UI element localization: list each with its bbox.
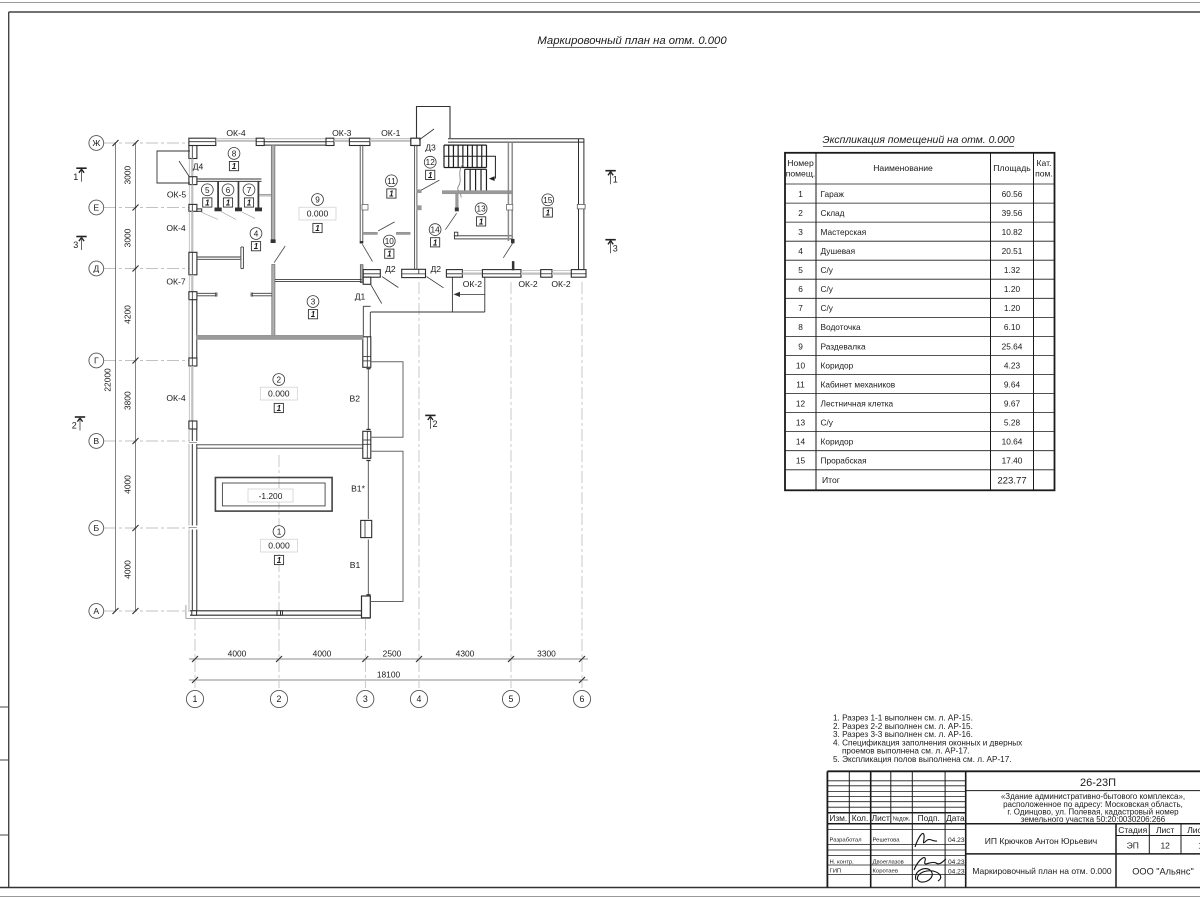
svg-text:ОК-4: ОК-4	[166, 223, 186, 233]
svg-text:ОК-2: ОК-2	[518, 279, 538, 289]
svg-text:Изм.: Изм.	[829, 813, 847, 823]
svg-text:10: 10	[796, 360, 806, 370]
svg-text:3: 3	[311, 298, 316, 307]
svg-text:14: 14	[796, 437, 806, 447]
svg-text:1: 1	[247, 199, 252, 208]
svg-text:1: 1	[613, 174, 618, 184]
svg-text:1.20: 1.20	[1004, 303, 1021, 313]
svg-text:60.56: 60.56	[1002, 189, 1023, 199]
svg-text:Склад: Склад	[821, 208, 845, 218]
svg-text:Ж: Ж	[92, 138, 100, 148]
svg-text:2500: 2500	[383, 649, 402, 659]
svg-text:04.23: 04.23	[948, 837, 965, 844]
svg-text:Разработал: Разработал	[830, 838, 863, 844]
svg-text:1: 1	[798, 189, 803, 199]
svg-text:Лист: Лист	[1156, 825, 1175, 835]
svg-text:15: 15	[796, 456, 806, 466]
svg-text:ОК-4: ОК-4	[166, 393, 186, 403]
svg-text:Экспликация помещений на отм.: Экспликация помещений на отм. 0.000	[822, 135, 1014, 146]
svg-text:Номер: Номер	[787, 158, 814, 168]
svg-text:15: 15	[543, 196, 553, 205]
svg-text:-1.200: -1.200	[259, 491, 283, 501]
svg-text:№док.: №док.	[893, 816, 911, 823]
svg-text:3: 3	[363, 694, 368, 704]
svg-text:1.32: 1.32	[1004, 265, 1021, 275]
svg-text:8: 8	[798, 322, 803, 332]
svg-text:Г: Г	[94, 356, 99, 366]
svg-text:0.000: 0.000	[268, 541, 290, 551]
svg-text:10.82: 10.82	[1002, 227, 1023, 237]
svg-text:Маркировочный план на отм. 0.0: Маркировочный план на отм. 0.000	[972, 866, 1112, 876]
svg-text:ИП Крючков Антон Юрьевич: ИП Крючков Антон Юрьевич	[985, 836, 1097, 846]
svg-text:3: 3	[613, 243, 618, 253]
svg-text:Кат.: Кат.	[1037, 158, 1052, 168]
svg-text:Кол.: Кол.	[852, 813, 869, 823]
svg-text:14: 14	[431, 226, 441, 235]
svg-text:Дата: Дата	[946, 813, 965, 823]
svg-text:6: 6	[226, 186, 231, 195]
svg-text:13: 13	[477, 205, 487, 214]
svg-text:Д2: Д2	[385, 264, 396, 274]
svg-text:Кабинет механиков: Кабинет механиков	[821, 379, 896, 389]
svg-text:Д2: Д2	[430, 264, 441, 274]
svg-text:С/у: С/у	[821, 265, 834, 275]
svg-text:В1*: В1*	[351, 484, 366, 494]
svg-text:4: 4	[798, 246, 803, 256]
svg-text:Н. контр.: Н. контр.	[830, 860, 855, 866]
svg-text:17.40: 17.40	[1002, 456, 1023, 466]
svg-text:3300: 3300	[537, 649, 556, 659]
svg-text:ОК-3: ОК-3	[332, 128, 352, 138]
svg-text:2: 2	[277, 694, 282, 704]
svg-text:Коротаев: Коротаев	[873, 869, 898, 875]
svg-text:9.64: 9.64	[1004, 379, 1021, 389]
svg-text:1: 1	[311, 310, 316, 319]
svg-text:Душевая: Душевая	[821, 246, 856, 256]
svg-text:Подп.: Подп.	[918, 813, 940, 823]
svg-text:1: 1	[73, 172, 78, 182]
svg-text:ГИП: ГИП	[830, 869, 842, 875]
svg-text:Мастерская: Мастерская	[821, 227, 867, 237]
svg-text:Б: Б	[93, 523, 99, 533]
svg-text:223.77: 223.77	[997, 476, 1026, 487]
svg-text:12: 12	[426, 158, 436, 167]
svg-text:2: 2	[432, 419, 437, 429]
svg-text:1: 1	[277, 556, 282, 565]
svg-text:1: 1	[277, 404, 282, 413]
svg-text:Решетова: Решетова	[873, 838, 901, 844]
svg-text:4000: 4000	[313, 649, 332, 659]
svg-text:2: 2	[277, 376, 282, 385]
svg-text:3: 3	[73, 240, 78, 250]
svg-text:1: 1	[277, 528, 282, 537]
svg-text:Прорабская: Прорабская	[821, 456, 867, 466]
svg-text:Лист: Лист	[872, 813, 890, 823]
svg-text:2: 2	[798, 208, 803, 218]
svg-text:В: В	[93, 436, 99, 446]
svg-text:Раздевалка: Раздевалка	[821, 341, 866, 351]
svg-text:ЭП: ЭП	[1127, 841, 1139, 851]
svg-text:9: 9	[798, 341, 803, 351]
svg-text:4000: 4000	[228, 649, 247, 659]
svg-text:1: 1	[428, 171, 433, 180]
svg-text:7: 7	[247, 186, 252, 195]
svg-text:1: 1	[479, 217, 484, 226]
svg-text:5: 5	[798, 265, 803, 275]
svg-text:А: А	[93, 606, 99, 616]
svg-text:3800: 3800	[123, 391, 133, 410]
svg-text:0.000: 0.000	[268, 389, 290, 399]
svg-text:11: 11	[387, 177, 396, 186]
svg-text:5: 5	[205, 186, 210, 195]
svg-text:1: 1	[205, 199, 210, 208]
svg-text:С/у: С/у	[821, 418, 834, 428]
svg-text:ОК-4: ОК-4	[226, 128, 246, 138]
svg-text:9.67: 9.67	[1004, 398, 1021, 408]
svg-text:4300: 4300	[456, 649, 475, 659]
svg-text:6.10: 6.10	[1004, 322, 1021, 332]
svg-text:7: 7	[798, 303, 803, 313]
svg-text:ОК-1: ОК-1	[381, 128, 401, 138]
svg-text:1: 1	[389, 190, 394, 199]
svg-text:3000: 3000	[123, 166, 133, 185]
svg-text:Итог: Итог	[822, 475, 840, 485]
svg-text:В1: В1	[350, 560, 361, 570]
svg-text:9: 9	[315, 196, 320, 205]
svg-text:ОК-5: ОК-5	[167, 190, 187, 200]
svg-text:ООО "Альянс": ООО "Альянс"	[1132, 867, 1193, 877]
svg-text:С/у: С/у	[821, 284, 834, 294]
svg-text:Лестничная клетка: Лестничная клетка	[821, 398, 894, 408]
svg-text:12: 12	[1160, 841, 1170, 851]
svg-text:Е: Е	[93, 203, 99, 213]
svg-text:1: 1	[193, 694, 198, 704]
svg-text:Водоточка: Водоточка	[821, 322, 862, 332]
svg-text:В2: В2	[350, 394, 361, 404]
svg-text:1: 1	[315, 224, 320, 233]
svg-text:4: 4	[254, 230, 259, 239]
svg-text:1: 1	[226, 199, 231, 208]
svg-text:Коридор: Коридор	[821, 437, 854, 447]
svg-text:22000: 22000	[103, 368, 113, 392]
svg-text:18100: 18100	[377, 670, 401, 680]
svg-text:2: 2	[72, 421, 77, 431]
svg-text:5.28: 5.28	[1004, 418, 1021, 428]
svg-text:6: 6	[798, 284, 803, 294]
svg-text:12: 12	[796, 398, 806, 408]
svg-text:5. Экспликация полов выполнена: 5. Экспликация полов выполнена см. л. АР…	[833, 755, 1012, 764]
svg-text:10: 10	[385, 237, 395, 246]
svg-text:ОК-2: ОК-2	[463, 279, 483, 289]
svg-text:1: 1	[387, 250, 392, 259]
svg-text:Маркировочный план на отм. 0.0: Маркировочный план на отм. 0.000	[537, 35, 727, 47]
svg-text:25.64: 25.64	[1002, 341, 1023, 351]
svg-text:Листов: Листов	[1187, 825, 1200, 835]
svg-text:Д: Д	[93, 264, 99, 274]
svg-text:Д3: Д3	[425, 143, 436, 153]
svg-text:3: 3	[798, 227, 803, 237]
svg-text:Двоеглазов: Двоеглазов	[873, 860, 904, 866]
svg-text:1: 1	[546, 209, 551, 218]
svg-text:20.51: 20.51	[1002, 246, 1023, 256]
svg-text:3000: 3000	[123, 228, 133, 247]
svg-text:13: 13	[796, 418, 806, 428]
svg-text:6: 6	[580, 694, 585, 704]
svg-text:земельного участка 50:20:00302: земельного участка 50:20:0030206:266	[1021, 815, 1166, 824]
svg-text:Площадь: Площадь	[993, 163, 1031, 173]
svg-text:Наименование: Наименование	[873, 163, 933, 173]
svg-text:Коридор: Коридор	[821, 360, 854, 370]
svg-text:04.23: 04.23	[948, 868, 965, 875]
svg-text:помещ.: помещ.	[786, 169, 816, 179]
svg-text:4000: 4000	[123, 475, 133, 494]
svg-text:4: 4	[417, 694, 422, 704]
svg-text:ОК-2: ОК-2	[551, 279, 571, 289]
svg-text:10.64: 10.64	[1002, 437, 1023, 447]
svg-text:8: 8	[232, 149, 237, 158]
svg-text:26-23П: 26-23П	[1080, 777, 1116, 789]
svg-text:4.23: 4.23	[1004, 360, 1021, 370]
svg-text:Д1: Д1	[355, 292, 366, 302]
svg-text:04.23: 04.23	[948, 859, 965, 866]
svg-text:Гараж: Гараж	[821, 189, 845, 199]
svg-text:С/у: С/у	[821, 303, 834, 313]
svg-text:1: 1	[254, 242, 259, 251]
svg-text:0.000: 0.000	[307, 209, 329, 219]
svg-text:39.56: 39.56	[1002, 208, 1023, 218]
svg-text:Д4: Д4	[193, 162, 204, 172]
svg-text:4000: 4000	[123, 560, 133, 579]
svg-text:5: 5	[509, 694, 514, 704]
svg-text:Стадия: Стадия	[1118, 825, 1147, 835]
svg-text:1: 1	[232, 162, 237, 171]
svg-text:ОК-7: ОК-7	[166, 277, 186, 287]
svg-text:4200: 4200	[123, 305, 133, 324]
svg-text:пом.: пом.	[1035, 169, 1053, 179]
svg-text:11: 11	[796, 379, 805, 389]
svg-text:1.20: 1.20	[1004, 284, 1021, 294]
svg-text:1: 1	[433, 238, 438, 247]
